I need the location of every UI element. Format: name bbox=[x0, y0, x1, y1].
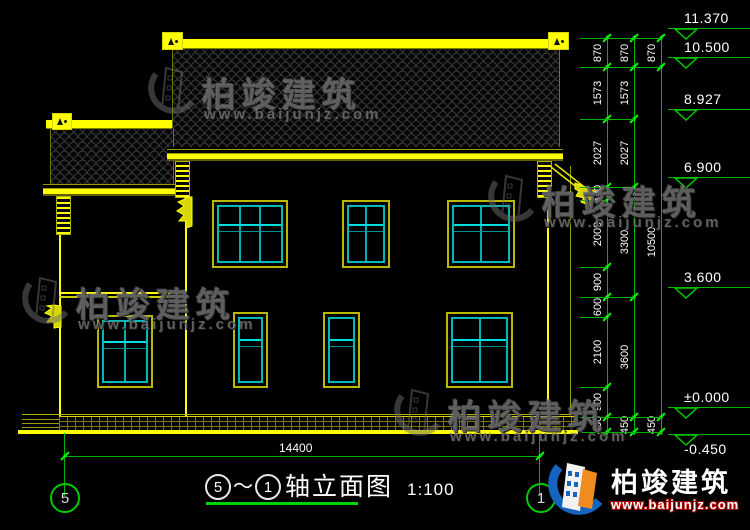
watermark-logo-icon bbox=[392, 384, 444, 449]
title-text: 轴立面图 bbox=[285, 475, 393, 500]
watermark-url-text: www.baijunjz.com bbox=[78, 316, 255, 333]
watermark-brand-text: 柏竣建筑 bbox=[202, 68, 362, 117]
title-underline bbox=[206, 502, 358, 505]
watermark-brand-text: 柏竣建筑 bbox=[448, 390, 608, 439]
watermark-logo-icon bbox=[486, 170, 538, 235]
watermark-url-text: www.baijunjz.com bbox=[204, 106, 381, 123]
watermark-brand-text: 柏竣建筑 bbox=[76, 278, 236, 327]
elevation-drawing-canvas: 柏竣建筑www.baijunjz.com柏竣建筑www.baijunjz.com… bbox=[0, 0, 750, 530]
watermark: 柏竣建筑www.baijunjz.com bbox=[20, 272, 340, 342]
brand-logo-url: www.baijunjz.com bbox=[611, 497, 739, 512]
title-axis-start-bubble: 5 bbox=[205, 474, 231, 500]
watermark: 柏竣建筑www.baijunjz.com bbox=[486, 170, 750, 240]
watermark-url-text: www.baijunjz.com bbox=[544, 214, 721, 231]
drawing-title: 5 ～ 1 轴立面图 1:100 bbox=[205, 472, 455, 500]
watermark-logo-icon bbox=[146, 62, 198, 127]
watermark: 柏竣建筑www.baijunjz.com bbox=[146, 62, 466, 132]
brand-logo: 柏竣建筑 www.baijunjz.com bbox=[545, 455, 750, 525]
watermark: 柏竣建筑www.baijunjz.com bbox=[392, 384, 712, 454]
title-separator: ～ bbox=[233, 474, 253, 500]
title-axis-end-bubble: 1 bbox=[255, 474, 281, 500]
watermark-url-text: www.baijunjz.com bbox=[450, 428, 627, 445]
watermark-brand-text: 柏竣建筑 bbox=[542, 176, 702, 225]
brand-logo-icon bbox=[545, 457, 607, 521]
watermark-layer: 柏竣建筑www.baijunjz.com柏竣建筑www.baijunjz.com… bbox=[0, 0, 750, 530]
watermark-logo-icon bbox=[20, 272, 72, 337]
brand-logo-name: 柏竣建筑 bbox=[611, 461, 731, 500]
title-scale: 1:100 bbox=[407, 480, 455, 500]
